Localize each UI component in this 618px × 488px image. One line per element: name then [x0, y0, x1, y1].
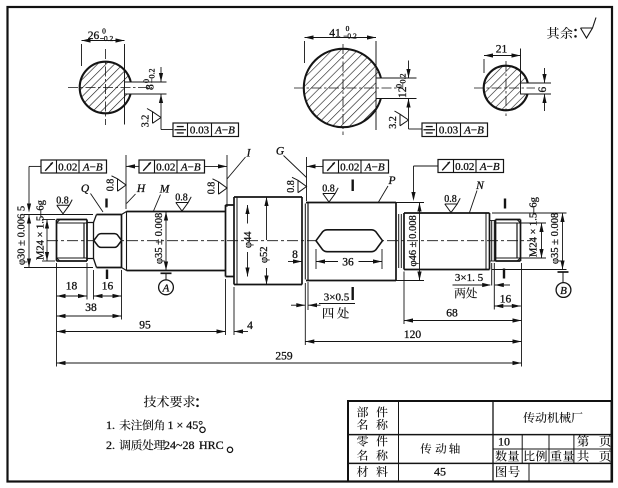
svg-text:1.: 1.: [106, 418, 115, 432]
svg-text:φ35 ± 0.008: φ35 ± 0.008: [550, 213, 561, 264]
svg-text:φ46 ± 0.008: φ46 ± 0.008: [408, 215, 419, 266]
svg-text:A: A: [162, 282, 170, 294]
svg-text:φ30 ± 0.006 5: φ30 ± 0.006 5: [17, 206, 28, 265]
svg-text:3×1. 5: 3×1. 5: [455, 272, 484, 284]
svg-text:1 × 45°: 1 × 45°: [168, 418, 204, 432]
svg-text:φ52: φ52: [259, 246, 270, 263]
svg-text:Q: Q: [81, 183, 90, 195]
svg-text:M24 × 1.5–6g: M24 × 1.5–6g: [529, 196, 540, 257]
svg-text:0.02: 0.02: [156, 161, 175, 173]
svg-text:A−B: A−B: [364, 161, 385, 173]
svg-text:HRC: HRC: [199, 438, 224, 452]
svg-text:68: 68: [446, 307, 458, 319]
svg-text:3.2: 3.2: [141, 115, 152, 128]
svg-text:24~28: 24~28: [164, 438, 195, 452]
svg-text:0.8: 0.8: [175, 192, 188, 203]
svg-text:0.8: 0.8: [322, 183, 335, 194]
svg-text:A−B: A−B: [463, 125, 484, 137]
svg-text:−0.2: −0.2: [100, 34, 114, 43]
svg-text:3×0.5: 3×0.5: [324, 291, 350, 303]
svg-text:6: 6: [537, 87, 549, 93]
svg-text:21: 21: [496, 43, 508, 55]
svg-text:B: B: [560, 285, 567, 297]
svg-text:M: M: [159, 183, 171, 195]
svg-text:0.8: 0.8: [444, 194, 457, 205]
svg-text:−0.2: −0.2: [399, 73, 408, 88]
svg-text:0.8: 0.8: [206, 182, 217, 195]
svg-text:10: 10: [498, 435, 510, 449]
svg-text:26: 26: [88, 30, 100, 42]
svg-text:H: H: [136, 183, 146, 195]
svg-text:A−B: A−B: [214, 125, 235, 137]
svg-text:0.02: 0.02: [58, 161, 77, 173]
svg-text:8: 8: [145, 84, 157, 90]
svg-text:A−B: A−B: [82, 161, 103, 173]
svg-text:−0.2: −0.2: [343, 32, 357, 41]
svg-text:0.03: 0.03: [439, 125, 459, 137]
svg-text:3.2: 3.2: [388, 116, 399, 129]
svg-text:0.8: 0.8: [56, 195, 69, 206]
svg-text:259: 259: [275, 350, 293, 362]
svg-text:A−B: A−B: [180, 161, 201, 173]
svg-text:0.8: 0.8: [105, 179, 116, 192]
svg-text:φ44: φ44: [243, 231, 254, 248]
svg-text:4: 4: [247, 320, 253, 332]
svg-text:0.03: 0.03: [190, 125, 210, 137]
svg-text:P: P: [387, 175, 395, 187]
svg-text:16: 16: [102, 280, 114, 292]
svg-text:φ35 ± 0.008: φ35 ± 0.008: [154, 213, 165, 264]
svg-text:M24 × 1.5–6g: M24 × 1.5–6g: [36, 199, 47, 260]
svg-text:41: 41: [329, 27, 341, 39]
svg-text:45: 45: [434, 465, 446, 479]
svg-text:0.8: 0.8: [286, 180, 297, 193]
svg-text:36: 36: [342, 256, 354, 268]
svg-text:18: 18: [66, 280, 78, 292]
svg-text:0.02: 0.02: [340, 161, 359, 173]
svg-text:N: N: [475, 180, 485, 192]
svg-text:8: 8: [292, 249, 298, 261]
svg-text:2.: 2.: [106, 438, 115, 452]
svg-text:−0.2: −0.2: [148, 68, 157, 83]
svg-text:95: 95: [139, 319, 151, 331]
svg-text:38: 38: [85, 302, 97, 314]
svg-text:16: 16: [500, 293, 512, 305]
svg-text:120: 120: [404, 329, 422, 341]
svg-text:A−B: A−B: [479, 161, 500, 173]
svg-text:0.02: 0.02: [455, 161, 474, 173]
